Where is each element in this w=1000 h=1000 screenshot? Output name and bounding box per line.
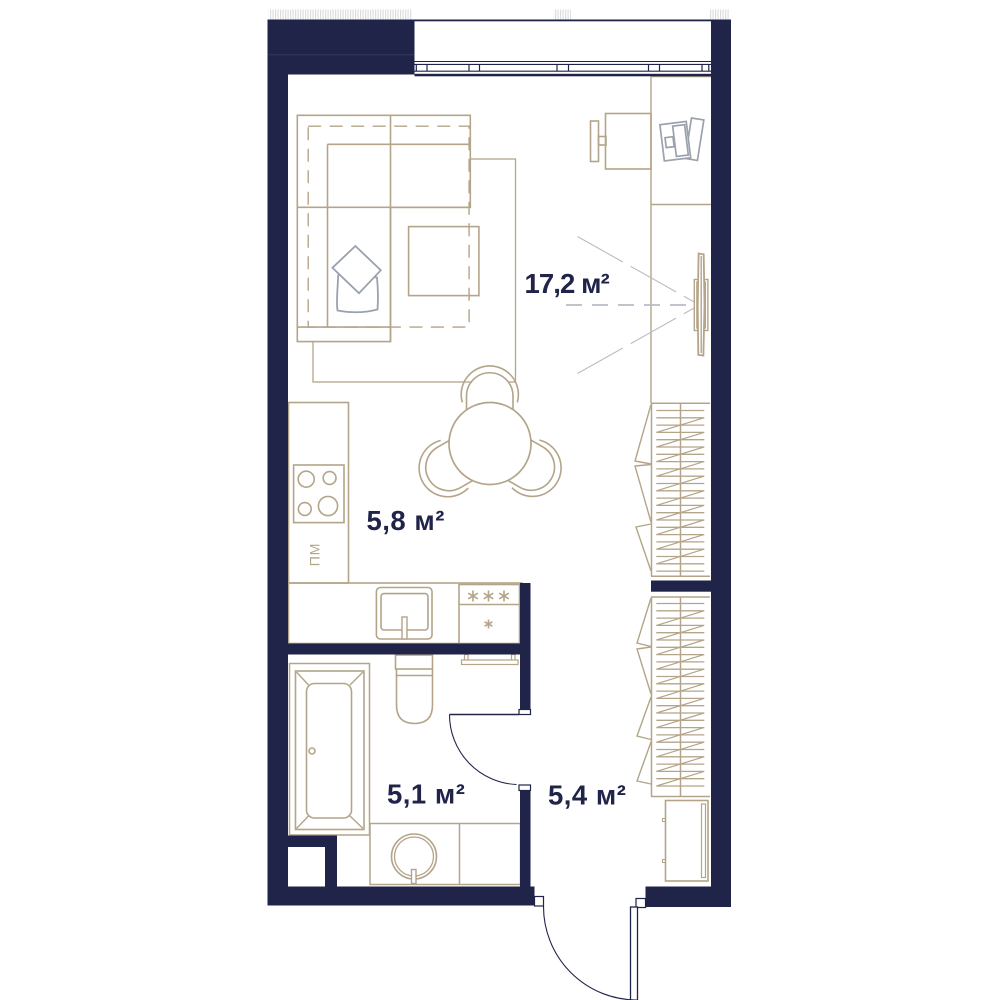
svg-text:5,1 м²: 5,1 м² <box>387 779 465 810</box>
svg-text:5,8 м²: 5,8 м² <box>367 505 445 536</box>
svg-text:ПМ: ПМ <box>307 543 323 567</box>
svg-text:17,2 м²: 17,2 м² <box>525 268 610 299</box>
svg-text:5,4 м²: 5,4 м² <box>548 780 626 811</box>
